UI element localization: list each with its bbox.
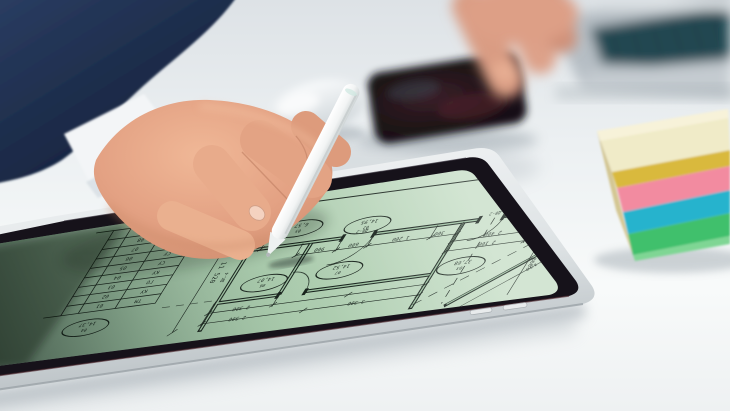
photo-canvas: 09 КО 08 КО 07 КО 06 СУ 05 СУ 04 КУ 03 Г… xyxy=(0,0,730,411)
laptop-shadow xyxy=(556,86,730,100)
